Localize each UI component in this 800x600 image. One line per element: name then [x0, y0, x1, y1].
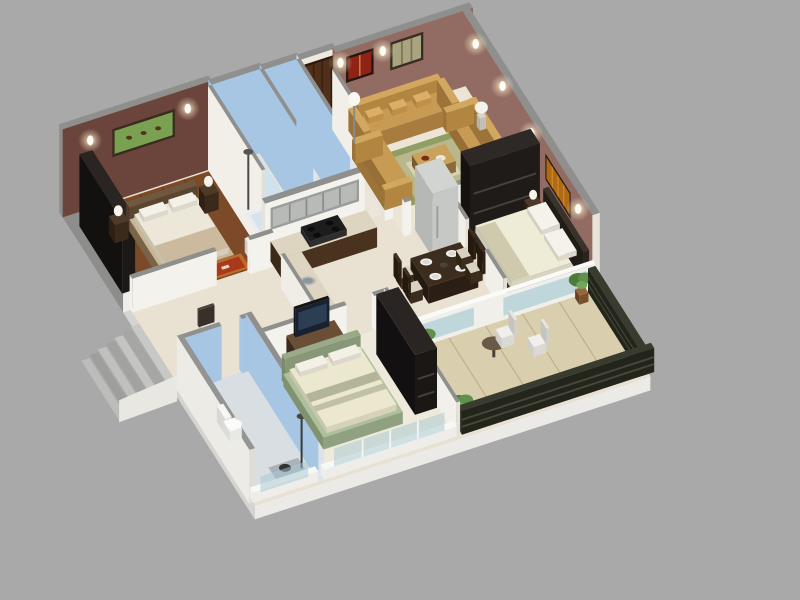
dining-chair-back [483, 252, 486, 275]
stove-burner [313, 233, 321, 238]
painting-red [359, 55, 361, 77]
wall-sconce [337, 58, 343, 68]
hall-chair-back [198, 308, 199, 327]
wall-bedroom2-north [372, 292, 375, 330]
table-lamp [204, 176, 213, 187]
stove-burner [307, 227, 315, 232]
floor-lamp-shade [348, 92, 360, 106]
painting-horses [141, 131, 147, 135]
toilet-bowl [226, 419, 242, 429]
window-mullion [389, 430, 391, 449]
flower-bouquet [475, 101, 488, 113]
stove-burner [332, 227, 340, 232]
wall-bedroom2-east [456, 401, 460, 436]
kitchen-sink-basin [302, 278, 313, 284]
flower-pot [480, 117, 486, 131]
painting-gold [563, 184, 564, 206]
tv [294, 307, 296, 338]
wall-sconce [499, 81, 505, 91]
table-decor [421, 156, 429, 161]
wall-sconce [87, 135, 93, 145]
floor-lamp-pole [353, 105, 355, 143]
window-mullion [362, 439, 364, 458]
dining-chair-back [474, 237, 477, 260]
painting-horses [126, 136, 132, 140]
shower-pole [301, 416, 303, 468]
kitchen-upper-cabinets [306, 199, 308, 217]
wall-bath3-north [239, 315, 242, 373]
wardrobe-bedroom2 [415, 348, 437, 415]
wall-living-south [402, 199, 405, 237]
window-mullion [417, 421, 419, 440]
painting-green [401, 41, 403, 65]
wall-bedroom1-south [247, 236, 250, 274]
painting-gold [552, 166, 553, 188]
wall-bedroom1-south [130, 275, 133, 313]
wall-sconce [575, 204, 581, 214]
wall-sconce [185, 104, 191, 114]
kitchen-upper-cabinets [289, 204, 291, 222]
balcony-chair-back [514, 319, 517, 336]
painting-horses [155, 126, 161, 130]
kitchen-upper-cabinets [322, 193, 324, 211]
dining-chair-back [408, 276, 411, 299]
table-lamp [114, 205, 123, 216]
wall-sconce [472, 39, 478, 49]
floor-plan-render [0, 0, 800, 600]
shower-head [243, 149, 253, 155]
balcony-chair-back [547, 328, 550, 345]
plate-center [432, 274, 440, 278]
plate-center [422, 260, 430, 264]
painting-gold [558, 175, 559, 197]
plate-center [448, 251, 456, 255]
wall-north-bedroom1 [59, 124, 62, 217]
table-lamp [529, 190, 537, 200]
kitchen-upper-cabinets [339, 188, 341, 206]
table-centerpiece [440, 263, 448, 268]
stove-burner [325, 221, 333, 226]
wall-sconce [380, 46, 386, 56]
painting-green [411, 38, 413, 62]
floor-plan-stage [0, 0, 800, 600]
wall-living-south [405, 200, 411, 236]
shower-pole [247, 152, 249, 210]
fridge-handle [436, 206, 438, 239]
potted-plant-foliage [576, 281, 587, 289]
dining-chair-back [399, 261, 402, 284]
